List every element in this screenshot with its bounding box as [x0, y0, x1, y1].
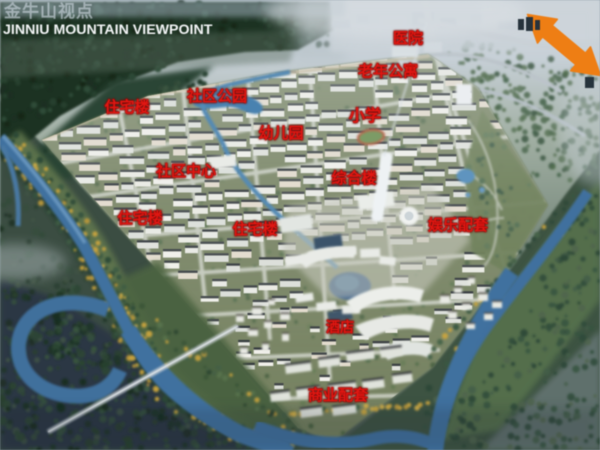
- svg-text:老年公寓: 老年公寓: [357, 62, 418, 80]
- svg-text:商业配套: 商业配套: [308, 386, 369, 404]
- svg-text:综合楼: 综合楼: [331, 169, 376, 187]
- svg-text:酒店: 酒店: [326, 319, 354, 335]
- svg-text:住宅楼: 住宅楼: [117, 209, 162, 227]
- svg-text:JINNIU MOUNTAIN VIEWPOINT: JINNIU MOUNTAIN VIEWPOINT: [3, 22, 213, 38]
- svg-text:住宅楼: 住宅楼: [104, 98, 149, 116]
- svg-text:住宅楼: 住宅楼: [232, 220, 277, 238]
- svg-text:金牛山视点: 金牛山视点: [3, 1, 94, 21]
- svg-text:娱乐配套: 娱乐配套: [428, 216, 489, 234]
- svg-text:幼儿园: 幼儿园: [258, 124, 303, 142]
- svg-text:小学: 小学: [349, 106, 381, 125]
- svg-text:医院: 医院: [393, 29, 423, 47]
- svg-text:社区中心: 社区中心: [155, 162, 216, 180]
- svg-text:社区公园: 社区公园: [186, 87, 247, 105]
